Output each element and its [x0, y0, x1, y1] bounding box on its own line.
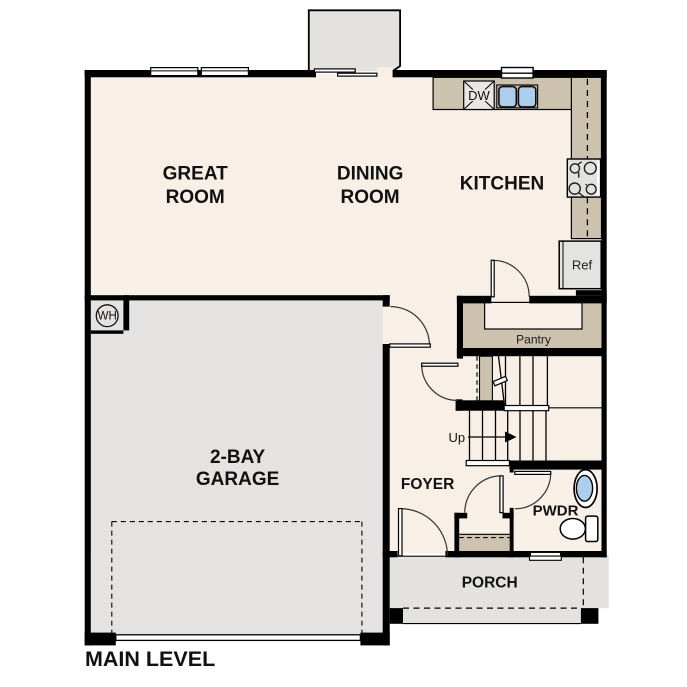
svg-text:GREAT: GREAT	[163, 163, 228, 184]
svg-text:PORCH: PORCH	[462, 574, 518, 591]
svg-text:Ref: Ref	[572, 258, 593, 273]
svg-text:GARAGE: GARAGE	[196, 469, 279, 490]
svg-text:PWDR: PWDR	[533, 502, 579, 519]
svg-text:WH: WH	[98, 311, 117, 323]
svg-text:KITCHEN: KITCHEN	[460, 173, 544, 194]
svg-text:MAIN LEVEL: MAIN LEVEL	[85, 647, 215, 671]
svg-text:DINING: DINING	[337, 163, 404, 184]
svg-text:DW: DW	[468, 88, 490, 103]
svg-text:Pantry: Pantry	[516, 333, 551, 347]
svg-text:Up: Up	[449, 430, 466, 445]
svg-text:FOYER: FOYER	[401, 476, 454, 493]
svg-text:ROOM: ROOM	[166, 187, 225, 208]
svg-text:2-BAY: 2-BAY	[210, 447, 266, 468]
svg-text:ROOM: ROOM	[341, 187, 400, 208]
